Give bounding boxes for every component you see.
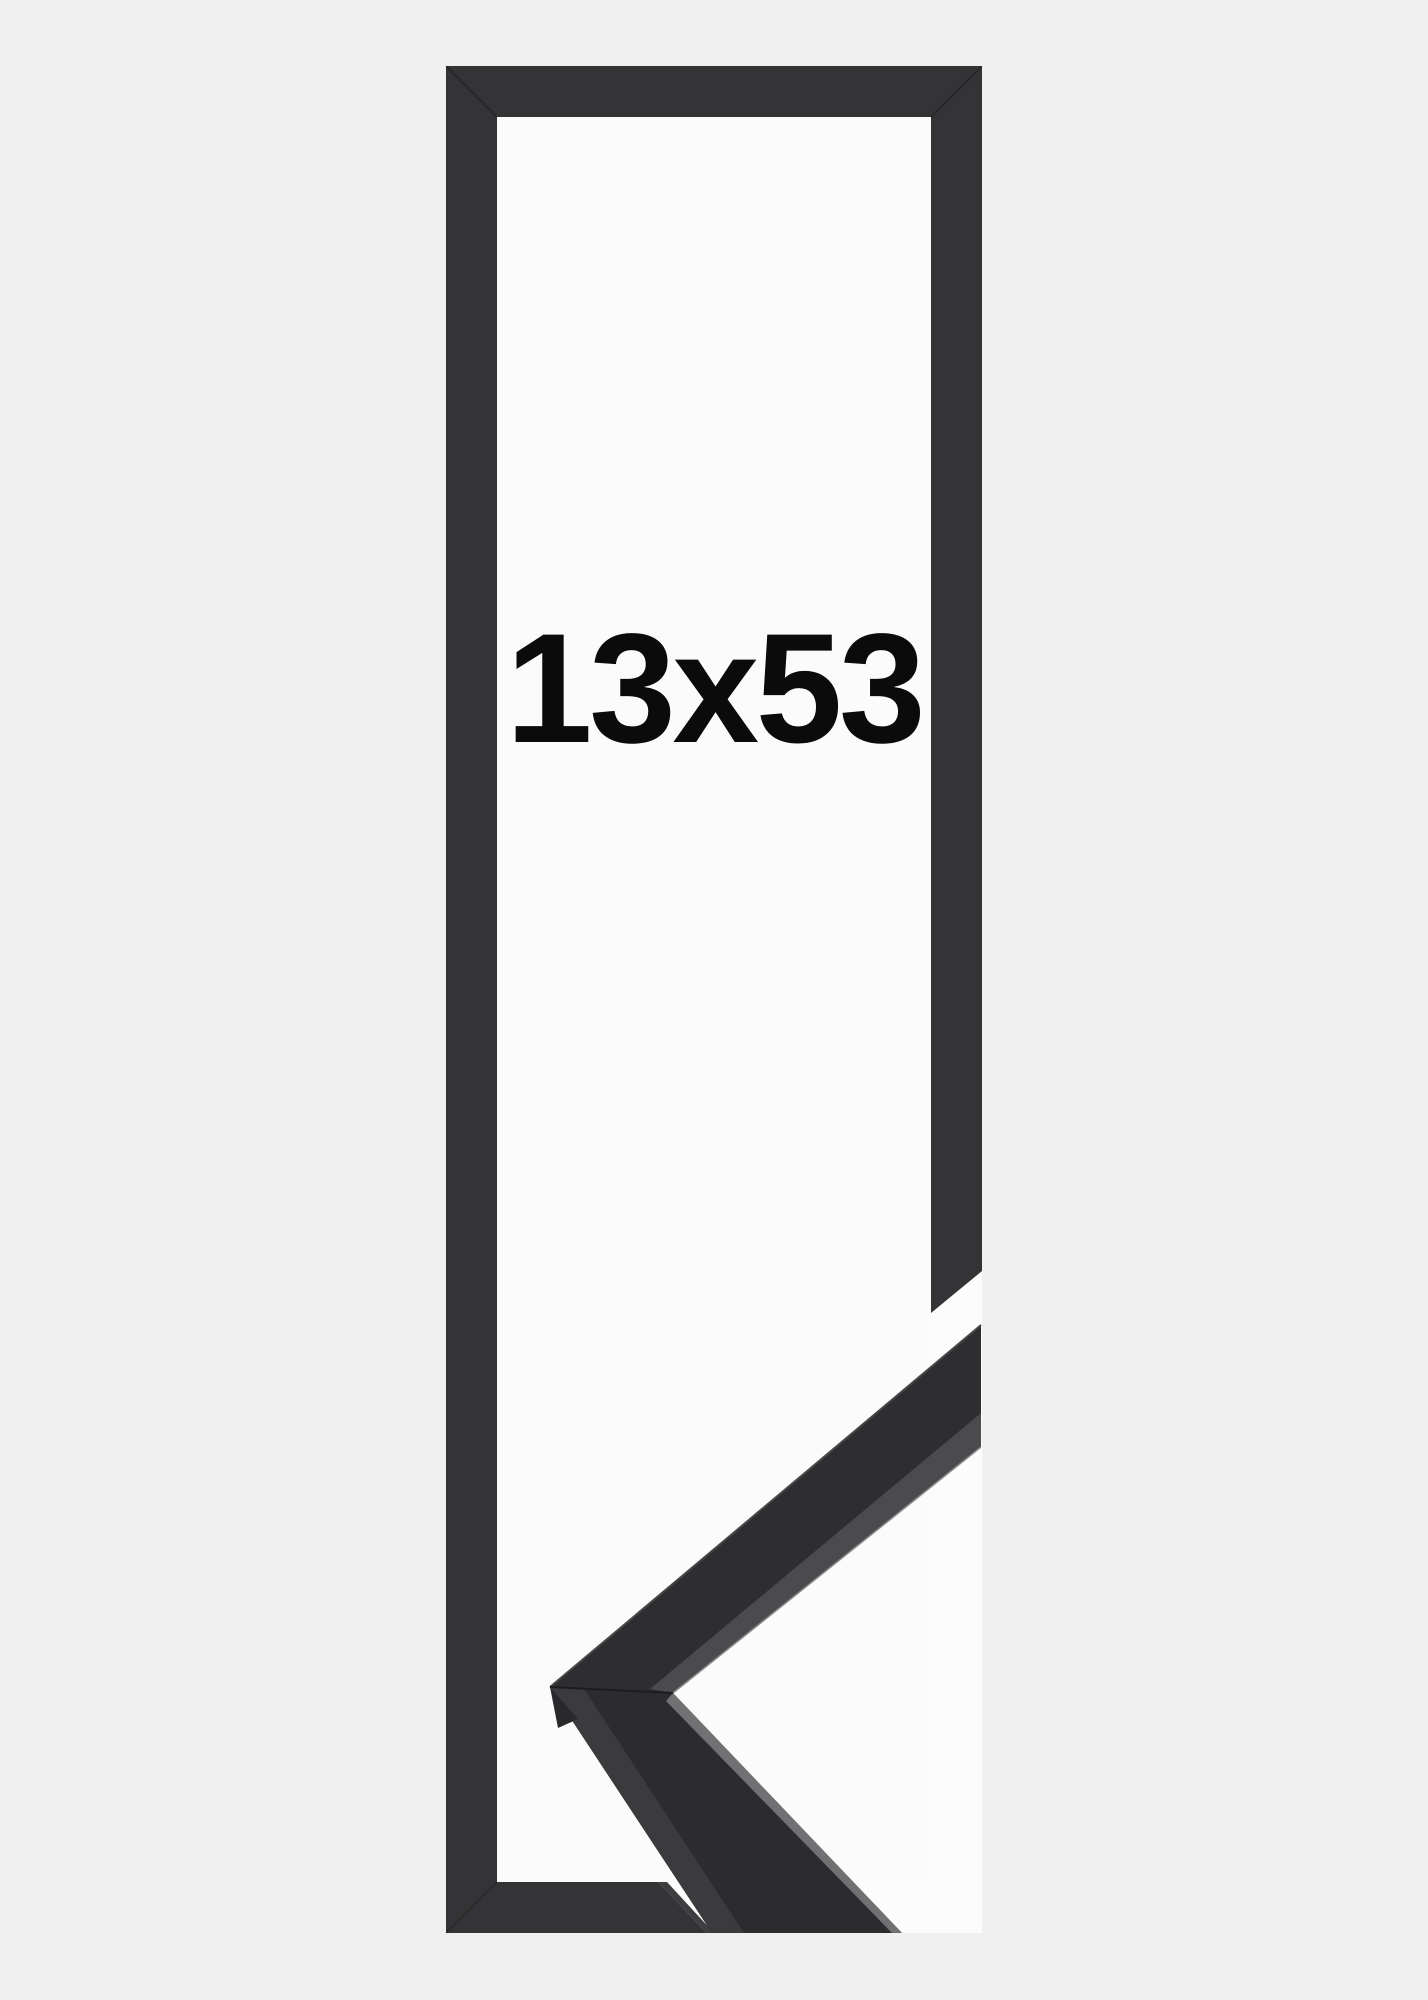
product-image: 13x53 xyxy=(0,0,1428,2000)
product-image-canvas: 13x53 xyxy=(0,0,1428,2000)
size-label: 13x53 xyxy=(506,602,922,776)
